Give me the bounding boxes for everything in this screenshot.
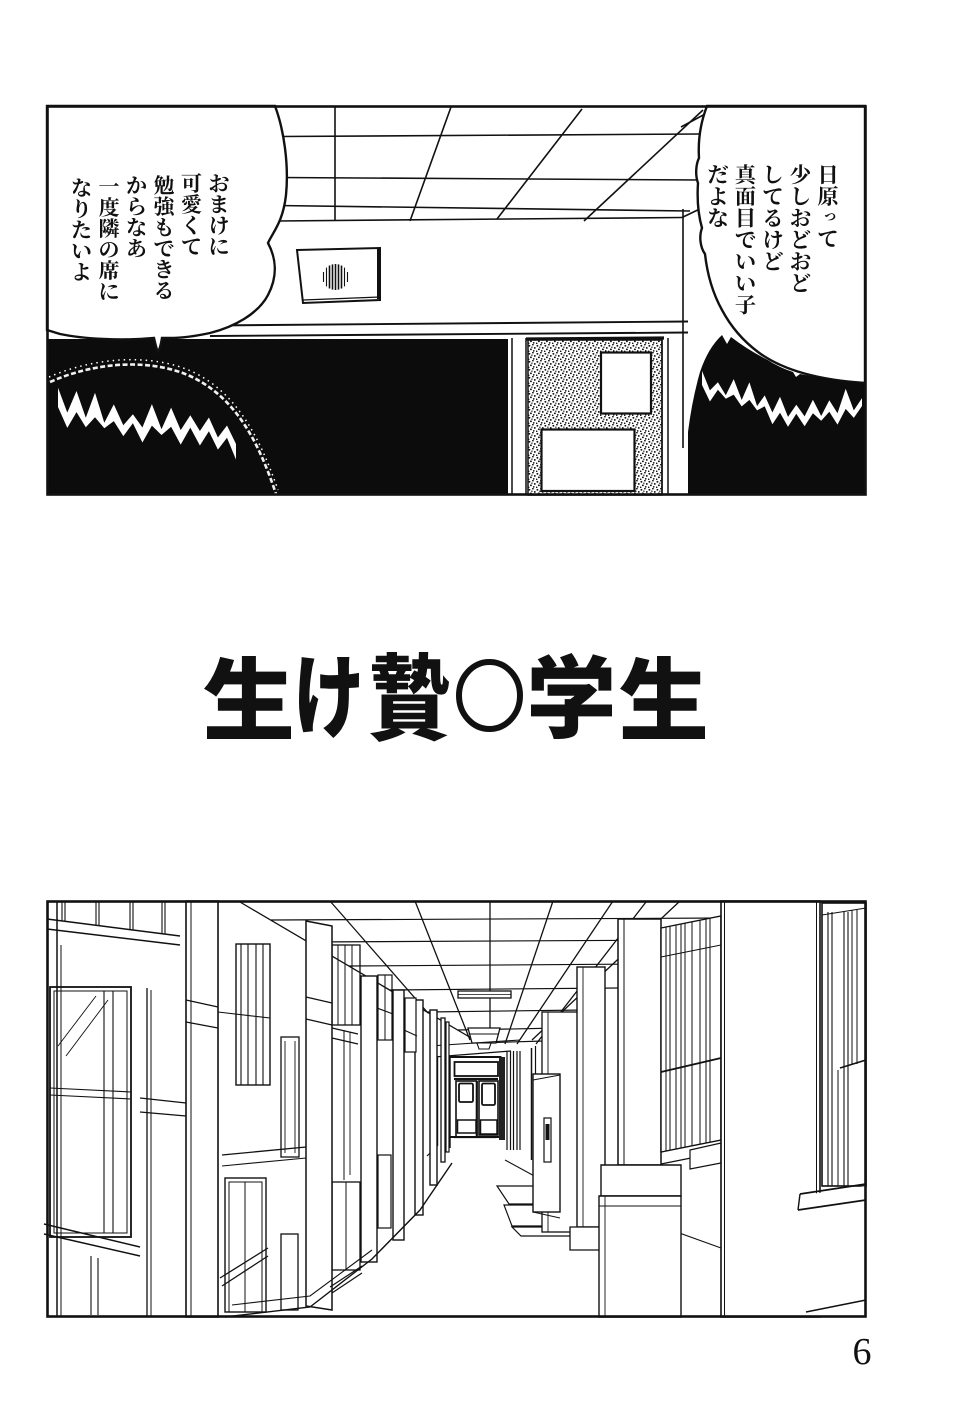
svg-text:6: 6 [853, 1331, 872, 1373]
